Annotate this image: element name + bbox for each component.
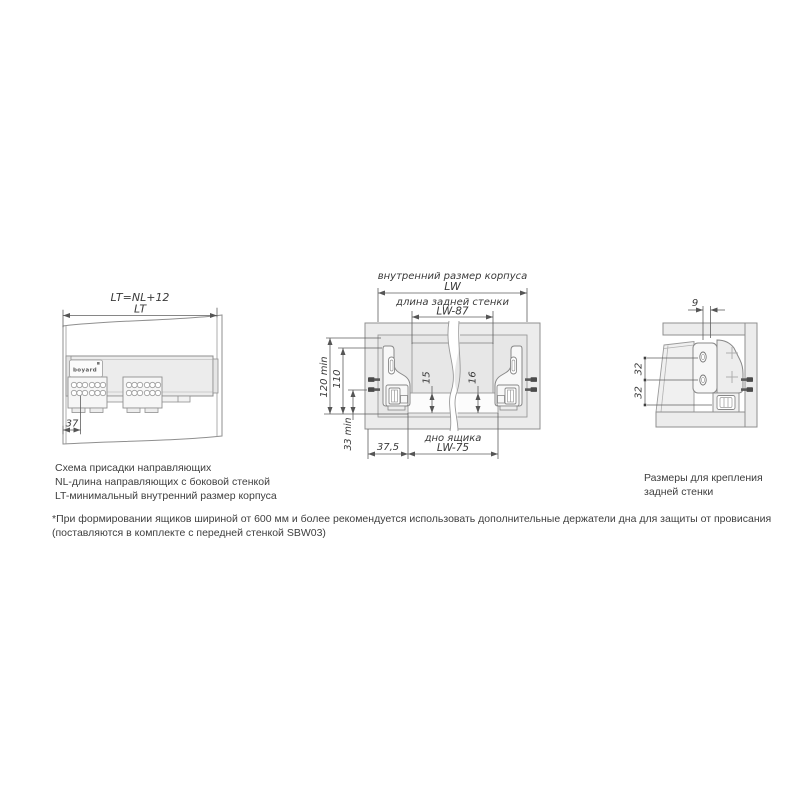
- footnote-line2: (поставляются в комплекте с передней сте…: [52, 526, 771, 540]
- dim-15-label: 15: [422, 371, 433, 384]
- rail-block: [713, 393, 739, 412]
- technical-drawing: boyard: [0, 0, 800, 800]
- dim-375-label: 37,5: [377, 442, 399, 453]
- fixing-plate: [693, 343, 717, 393]
- hole-block-rear: [123, 377, 162, 413]
- dim-9-label: 9: [692, 298, 698, 309]
- dim-120-label: 120 min: [319, 356, 330, 397]
- dim-lw87-label: LW-87: [436, 306, 468, 318]
- hole-block-front: [68, 377, 107, 413]
- caption-right-line2: задней стенки: [644, 485, 763, 499]
- plate-curve: [717, 340, 743, 393]
- caption-left: Схема присадки направляющих NL-длина нап…: [55, 461, 277, 503]
- dim-16-label: 16: [468, 371, 479, 384]
- catalog-scheme-page: boyard: [0, 0, 800, 800]
- dim-33-label: 33 min: [343, 417, 354, 450]
- drawer-bottom-edge: [656, 412, 745, 427]
- caption-left-line3: LT-минимальный внутренний размер корпуса: [55, 489, 277, 503]
- dim-110-label: 110: [332, 369, 343, 388]
- dim-32a-label: 32: [634, 363, 645, 376]
- footnote-line1: *При формировании ящиков шириной от 600 …: [52, 512, 771, 526]
- cross-section-diagram: внутренний размер корпуса LW длина задне…: [319, 271, 540, 459]
- dim-lw75-label: LW-75: [437, 442, 469, 454]
- dim-lw-label: LW: [444, 280, 462, 293]
- footnote: *При формировании ящиков шириной от 600 …: [52, 512, 771, 540]
- caption-left-line1: Схема присадки направляющих: [55, 461, 277, 475]
- dim-lt-label: LT: [134, 303, 147, 316]
- side-view-diagram: boyard: [63, 291, 222, 444]
- caption-left-line2: NL-длина направляющих с боковой стенкой: [55, 475, 277, 489]
- side-wall: [745, 323, 757, 427]
- caption-right: Размеры для крепления задней стенки: [644, 471, 763, 499]
- drawer-side: [656, 342, 694, 413]
- brand-logo: boyard: [73, 368, 97, 374]
- top-board: [663, 323, 745, 335]
- dim-32b-label: 32: [634, 386, 645, 399]
- caption-right-line1: Размеры для крепления: [644, 471, 763, 485]
- dim-37-label: 37: [66, 419, 79, 430]
- back-wall-fixing-diagram: 9 32 32: [634, 298, 758, 427]
